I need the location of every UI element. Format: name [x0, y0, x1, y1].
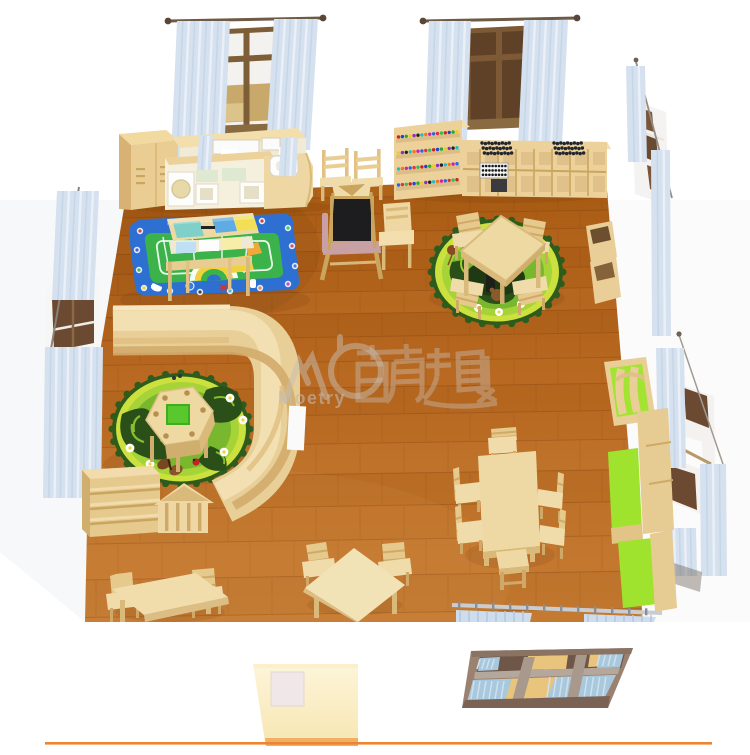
svg-text:Moetry: Moetry — [278, 388, 346, 408]
